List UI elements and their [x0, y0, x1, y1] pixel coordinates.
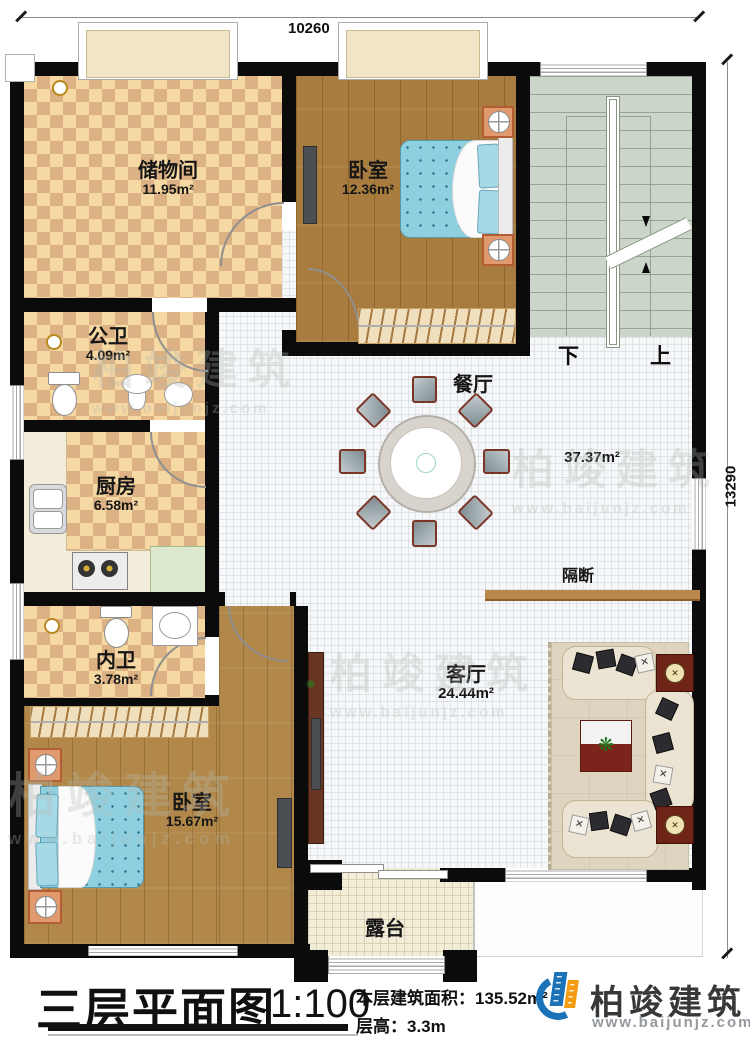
kitchen-appliance-unit: [150, 546, 207, 594]
dining-chair: [483, 449, 510, 474]
floor-plan-canvas: 下 上: [0, 0, 750, 1046]
side-table-top: ✕: [665, 663, 685, 683]
room-name: 厨房: [78, 476, 154, 498]
sofa-pillow: ✕: [634, 652, 655, 673]
window-terrace: [328, 956, 445, 974]
cross-icon: ✕: [640, 656, 650, 669]
window: [88, 946, 238, 956]
wardrobe: [358, 308, 516, 344]
wall: [294, 606, 308, 958]
window: [692, 478, 706, 550]
ceiling-lamp-icon: [44, 618, 60, 634]
eave-area: [473, 882, 703, 957]
stair-flight-line: [566, 116, 567, 336]
wall: [10, 62, 24, 958]
wall: [10, 592, 225, 606]
room-label-kitchen: 厨房 6.58m²: [78, 476, 154, 514]
wardrobe: [30, 706, 209, 738]
wall: [290, 592, 296, 606]
floor-area-label: 本层建筑面积：135.52m²: [356, 984, 548, 1009]
wall: [10, 298, 152, 312]
room-label-bedroom-top: 卧室 12.36m²: [320, 160, 416, 198]
room-name: 餐厅: [440, 374, 506, 396]
table-lamp-icon: [488, 239, 510, 261]
window: [540, 62, 647, 76]
tv: [311, 718, 321, 790]
window: [505, 868, 647, 882]
bay-window-glass: [86, 30, 230, 78]
room-label-storage: 储物间 11.95m²: [118, 160, 218, 198]
wall: [294, 342, 530, 356]
toilet: [100, 606, 132, 618]
title-underline-thin: [48, 1034, 358, 1036]
room-label-living: 客厅 24.44m²: [424, 664, 508, 703]
ceiling-lamp-icon: [52, 80, 68, 96]
wall: [24, 698, 205, 706]
floor-height-label: 层高：3.3m: [356, 1012, 446, 1037]
sofa-pillow: [589, 811, 609, 831]
pillow: [35, 794, 59, 839]
dining-table-center: [416, 453, 436, 473]
wall: [516, 62, 530, 356]
terrace-sliding-door: [310, 864, 384, 873]
room-name: 客厅: [424, 664, 508, 686]
kitchen-sink-bowl: [33, 511, 63, 529]
bed-blanket: [58, 786, 96, 888]
room-label-dining: 餐厅: [440, 374, 506, 396]
room-area: 24.44m²: [424, 686, 508, 703]
stair-flight-line: [650, 116, 651, 336]
dimension-height: 13290: [723, 454, 740, 520]
partition-bar: [485, 590, 700, 601]
table-lamp-icon: [488, 111, 510, 133]
room-area: 6.58m²: [78, 498, 154, 514]
plant-icon: ❋: [306, 678, 315, 691]
stair-direction-arrow: [642, 216, 650, 227]
cross-icon: ✕: [671, 668, 679, 678]
toilet: [52, 384, 77, 416]
round-basin: [164, 382, 193, 407]
wall: [294, 950, 328, 982]
wall: [692, 62, 706, 890]
wall: [443, 950, 477, 982]
cross-icon: ✕: [671, 820, 679, 830]
stair-direction-arrow: [642, 262, 650, 273]
room-label-inner-bath: 内卫 3.78m²: [80, 650, 152, 688]
room-name: 公卫: [70, 326, 146, 348]
bay-window-glass: [346, 30, 480, 78]
pedestal-sink: [122, 374, 152, 394]
room-area: 4.09m²: [70, 348, 146, 364]
room-area: 12.36m²: [320, 182, 416, 198]
partition-label: 隔断: [548, 568, 608, 586]
dining-chair: [412, 520, 437, 547]
cross-icon: ✕: [658, 768, 668, 780]
room-name: 露台: [354, 918, 416, 940]
stair-up-label: 上: [650, 340, 671, 370]
hall-area-label: 37.37m²: [556, 450, 628, 467]
wall: [24, 420, 150, 432]
cross-icon: ✕: [574, 818, 584, 831]
room-label-public-bath: 公卫 4.09m²: [70, 326, 146, 364]
room-label-terrace: 露台: [354, 918, 416, 940]
stove-burner-icon: [78, 560, 95, 577]
room-name: 卧室: [320, 160, 416, 182]
tv: [303, 146, 317, 224]
sofa-pillow: ✕: [568, 814, 589, 835]
room-area: 11.95m²: [118, 182, 218, 198]
window: [10, 385, 24, 460]
coffee-table: ❋: [580, 720, 632, 772]
room-name: 储物间: [118, 160, 218, 182]
ceiling-lamp-icon: [46, 334, 62, 350]
stair-railing: [606, 96, 620, 348]
sofa-pillow: [596, 649, 617, 670]
side-table-top: ✕: [665, 815, 685, 835]
kitchen-sink-bowl: [33, 489, 63, 509]
toilet: [104, 618, 129, 648]
table-lamp-icon: [35, 896, 57, 918]
room-area: 37.37m²: [556, 450, 628, 467]
room-area: 15.67m²: [150, 814, 234, 830]
window: [10, 583, 24, 660]
room-name: 内卫: [80, 650, 152, 672]
plant-icon: ❋: [598, 735, 614, 756]
wall: [207, 298, 296, 312]
cross-icon: ✕: [635, 814, 646, 827]
dining-chair: [412, 376, 437, 403]
exterior-frame: [5, 54, 35, 82]
stove-burner-icon: [101, 560, 118, 577]
dimension-width: 10260: [285, 20, 333, 37]
room-name: 隔断: [548, 568, 608, 586]
wall: [282, 76, 296, 202]
vanity-sink-bowl: [159, 612, 191, 639]
dimension-line-top: [20, 17, 700, 18]
tv: [277, 798, 292, 868]
stair-down-label: 下: [558, 340, 579, 370]
pillow: [35, 842, 59, 887]
plant-icon: ❋: [306, 679, 315, 691]
table-lamp-icon: [35, 754, 57, 776]
terrace-sliding-door: [378, 870, 448, 879]
bed-headboard: [498, 136, 513, 240]
room-area: 3.78m²: [80, 672, 152, 688]
wall: [205, 695, 219, 706]
dining-chair: [339, 449, 366, 474]
room-name: 卧室: [150, 792, 234, 814]
room-label-bedroom-bottom: 卧室 15.67m²: [150, 792, 234, 830]
sofa-pillow: ✕: [653, 765, 674, 786]
brand-website: www.baijunjz.com: [592, 1014, 750, 1031]
